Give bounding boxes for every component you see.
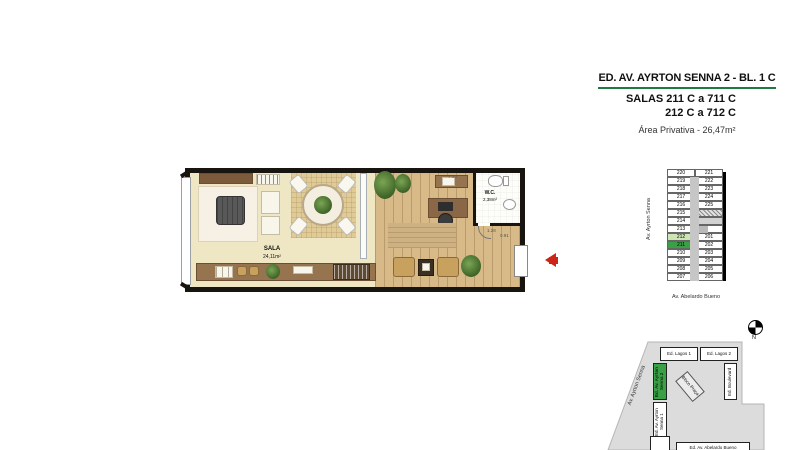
seat-cushion-2 (261, 216, 280, 235)
north-label: N (752, 335, 756, 341)
dim-entry: 0.91 (500, 233, 509, 238)
hall-plant (461, 255, 481, 277)
brochure-page: ED. AV. AYRTON SENNA 2 - BL. 1 C SALAS 2… (0, 0, 800, 450)
compass-icon (748, 320, 763, 335)
key-unit-206: 206 (695, 273, 723, 281)
entrance-arrow-icon (538, 253, 560, 267)
key-unit-204: 204 (695, 257, 723, 265)
louver-sideboard (333, 264, 370, 280)
building-abelardo-bueno: Ed. Av. Abelardo Bueno (676, 442, 750, 450)
key-plan-facade-line (723, 172, 726, 281)
wc-room: W.C. 2,38m² (473, 173, 520, 226)
glass-door-frame (360, 173, 367, 259)
wall-shelf (199, 173, 253, 184)
key-plan-core-hatch (695, 209, 723, 217)
sink (503, 199, 516, 210)
wc-area: 2,38m² (477, 197, 503, 203)
building-title: ED. AV. AYRTON SENNA 2 - BL. 1 C (598, 72, 776, 89)
key-plan: 220 219 218 217 216 215 214 213 212 211 … (667, 169, 725, 281)
keyplan-street-left: Av. Ayrton Senna (646, 180, 652, 258)
table-centerpiece-plant (314, 196, 332, 214)
building-boulevard: Ed. Boulevard (724, 363, 737, 400)
room-label-sala: SALA 24,11m² (250, 246, 294, 260)
hall-table-tray (422, 263, 430, 271)
sideboard-plant (266, 264, 280, 279)
building-lagos-2: Ed. Lagos 2 (700, 347, 738, 361)
hall-chair-1 (393, 257, 415, 277)
tray (293, 266, 313, 274)
office-rug (388, 223, 456, 248)
toilet (488, 175, 503, 187)
key-unit-222: 222 (695, 177, 723, 185)
window-frame-left (181, 177, 191, 285)
entry-door (514, 245, 528, 277)
hall-chair-2 (437, 257, 459, 277)
stool-2 (249, 266, 259, 276)
toilet-tank (503, 176, 509, 186)
room-label-wc: W.C. 2,38m² (477, 190, 503, 202)
seat-cushion-1 (261, 191, 280, 214)
building-senna-2-highlight: Ed. Av. Ayrton Senna 2 (653, 363, 667, 400)
key-unit-225: 225 (695, 201, 723, 209)
stool-1 (237, 266, 247, 276)
key-unit-203: 203 (695, 249, 723, 257)
office-plant-2 (395, 174, 411, 193)
building-small-annex (650, 436, 670, 450)
building-lagos-1: Ed. Lagos 1 (660, 347, 698, 361)
floor-plan: SALA 24,11m² (185, 168, 525, 292)
drawer-unit (215, 266, 233, 278)
dim-top: 7.10 (448, 174, 457, 179)
key-unit-224: 224 (695, 193, 723, 201)
armchair (216, 196, 245, 225)
salas-range-2: 212 C a 712 C (598, 106, 736, 120)
vent-unit (256, 174, 280, 185)
dim-wc-door: 1.28 (487, 228, 496, 233)
title-block: ED. AV. AYRTON SENNA 2 - BL. 1 C SALAS 2… (598, 72, 776, 135)
key-plan-corridor (690, 177, 699, 281)
key-unit-202: 202 (695, 241, 723, 249)
key-unit-205: 205 (695, 265, 723, 273)
sala-name: SALA (250, 246, 294, 254)
key-unit-201: 201 (695, 233, 723, 241)
key-plan-core-gray (695, 217, 723, 225)
site-plan: N Av. Ayrton Senna Ed. Lagos 1 Ed. Lagos… (596, 318, 800, 450)
keyplan-street-bottom: Av. Abelardo Bueno (650, 294, 742, 300)
key-unit-223: 223 (695, 185, 723, 193)
office-plant-1 (374, 171, 396, 199)
key-unit-221: 221 (695, 169, 723, 177)
laptop (438, 202, 453, 211)
sala-area: 24,11m² (250, 254, 294, 261)
salas-range-1: SALAS 211 C a 711 C (598, 92, 736, 106)
key-unit-220: 220 (667, 169, 695, 177)
private-area-label: Área Privativa - 26,47m² (598, 125, 776, 135)
